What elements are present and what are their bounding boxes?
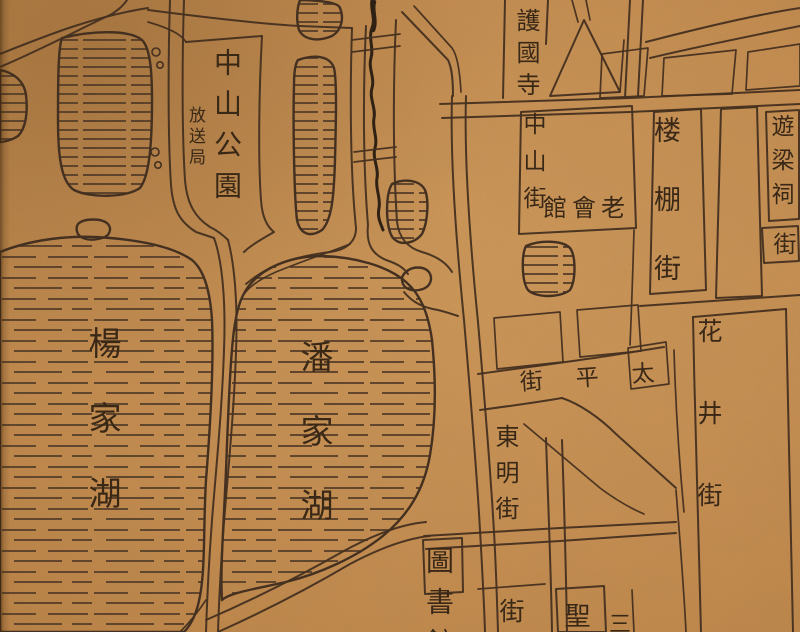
pond <box>523 242 575 296</box>
pond <box>294 57 336 234</box>
label-youliang-shrine: 遊梁祠 <box>768 114 791 216</box>
pond <box>58 32 152 196</box>
label-library: 圖書館 <box>424 546 452 632</box>
label-sheng-partial: 聖 <box>562 602 588 628</box>
label-huajing-street: 花井街 <box>696 318 721 564</box>
label-huguo-temple: 護國寺 <box>514 8 538 104</box>
label-yangjia-lake: 楊家湖 <box>86 326 119 551</box>
label-jie-partial: 街 <box>498 598 523 623</box>
label-youliang-shrine-jie: 街 <box>770 232 793 255</box>
label-dongming-street: 東明街 <box>493 424 517 532</box>
pond <box>297 0 342 39</box>
label-zhongshan-park: 中山公園 <box>212 48 240 212</box>
pond <box>387 181 427 243</box>
label-panjia-lake: 潘家湖 <box>298 340 331 562</box>
label-fangsongju: 放送局 <box>186 106 203 169</box>
label-loupeng-street: 楼棚街 <box>651 116 678 323</box>
historical-map-canvas: 護國寺 中山公園 放送局 中山街 館會老 楼棚街 遊梁祠 街 花井街 街平太 東… <box>0 0 800 632</box>
label-lao-huiguan: 館會老 <box>543 196 630 220</box>
label-zhongshan-street: 中山街 <box>520 112 543 223</box>
label-san-partial: 三 <box>606 612 628 632</box>
